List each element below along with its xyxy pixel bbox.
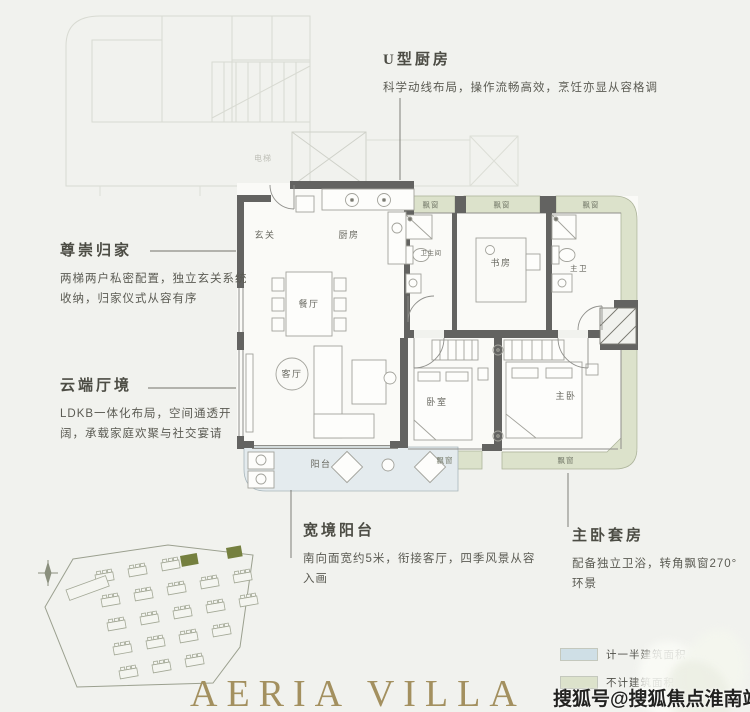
- balcony-table: [382, 459, 394, 471]
- wardrobe: [504, 340, 564, 360]
- side-table: [384, 372, 396, 384]
- bay-window-label: 飘窗: [437, 455, 454, 465]
- annotation-living: 云端厅境 LDKB一体化布局，空间通透开阔，承载家庭欢聚与社交宴请: [60, 374, 252, 444]
- room-label-kitchen: 厨房: [338, 229, 359, 240]
- floorplan-page: 电梯: [0, 0, 750, 712]
- room-label-bedroom: 卧室: [426, 396, 447, 407]
- bay-window-label: 飘窗: [423, 200, 440, 210]
- annotation-entry-title: 尊崇归家: [60, 239, 252, 260]
- washer: [248, 452, 274, 469]
- annotation-kitchen-desc: 科学动线布局，操作流畅高效，烹饪亦显从容格调: [383, 78, 643, 98]
- room-label-master-bedroom: 主卧: [555, 390, 576, 401]
- stairs: [212, 62, 310, 122]
- room-label-bathroom: 卫生间: [421, 248, 442, 257]
- site-highlighted-buildings: [180, 545, 243, 566]
- faint-adjacent-unit: [66, 16, 518, 196]
- site-plan: [38, 545, 258, 687]
- washer: [248, 471, 274, 488]
- annotation-entry: 尊崇归家 两梯两户私密配置，独立玄关系统收纳，归家仪式从容有序: [60, 239, 252, 309]
- ac-platform: [600, 308, 636, 344]
- annotation-balcony-desc: 南向面宽约5米，衔接客厅，四季风景从容入画: [303, 549, 543, 589]
- annotation-kitchen: U型厨房 科学动线布局，操作流畅高效，烹饪亦显从容格调: [383, 48, 643, 98]
- study-chair: [526, 254, 540, 270]
- armchair: [352, 360, 386, 404]
- bay-window-label: 飘窗: [558, 455, 575, 465]
- floor-plan-drawing: 电梯: [0, 0, 750, 712]
- annotation-master-desc: 配备独立卫浴，转角飘窗270°环景: [572, 554, 742, 594]
- wardrobe: [432, 340, 478, 360]
- room-label-master-bath: 主卫: [570, 263, 588, 273]
- annotation-living-title: 云端厅境: [60, 374, 252, 395]
- room-label-living: 客厅: [281, 368, 302, 379]
- bay-window-label: 飘窗: [494, 200, 511, 210]
- room-label-elevator: 电梯: [254, 153, 272, 163]
- sink-icon: [392, 223, 402, 233]
- sofa-chaise: [314, 414, 374, 438]
- kitchen-sink-counter: [388, 212, 406, 264]
- annotation-kitchen-title: U型厨房: [383, 48, 643, 69]
- room-label-foyer: 玄关: [254, 229, 275, 240]
- watermark-text: 搜狐号@搜狐焦点淮南站: [553, 684, 750, 711]
- kitchen-cabinet: [296, 196, 314, 212]
- bay-window-label: 飘窗: [583, 200, 600, 210]
- annotation-balcony-title: 宽境阳台: [303, 519, 543, 540]
- nightstand: [478, 368, 488, 380]
- toilet-tank: [406, 246, 413, 264]
- annotation-master-title: 主卧套房: [572, 524, 742, 545]
- vanity: [552, 274, 572, 292]
- toilet-tank: [552, 246, 559, 264]
- annotation-living-desc: LDKB一体化布局，空间通透开阔，承载家庭欢聚与社交宴请: [60, 404, 252, 444]
- room-label-dining: 餐厅: [298, 298, 319, 309]
- toilet-icon: [559, 249, 575, 262]
- bath-sink: [406, 274, 421, 293]
- legend-swatch-half-area: [560, 648, 598, 661]
- stove-counter: [322, 189, 414, 210]
- room-label-study: 书房: [490, 257, 511, 268]
- annotation-balcony: 宽境阳台 南向面宽约5米，衔接客厅，四季风景从容入画: [303, 519, 543, 589]
- annotation-entry-desc: 两梯两户私密配置，独立玄关系统收纳，归家仪式从容有序: [60, 269, 252, 309]
- north-compass-icon: [38, 560, 58, 586]
- desk-lamp: [486, 246, 495, 255]
- brand-logo: AERIA VILLA: [190, 672, 550, 712]
- annotation-master: 主卧套房 配备独立卫浴，转角飘窗270°环景: [572, 524, 742, 594]
- room-label-balcony: 阳台: [310, 458, 331, 469]
